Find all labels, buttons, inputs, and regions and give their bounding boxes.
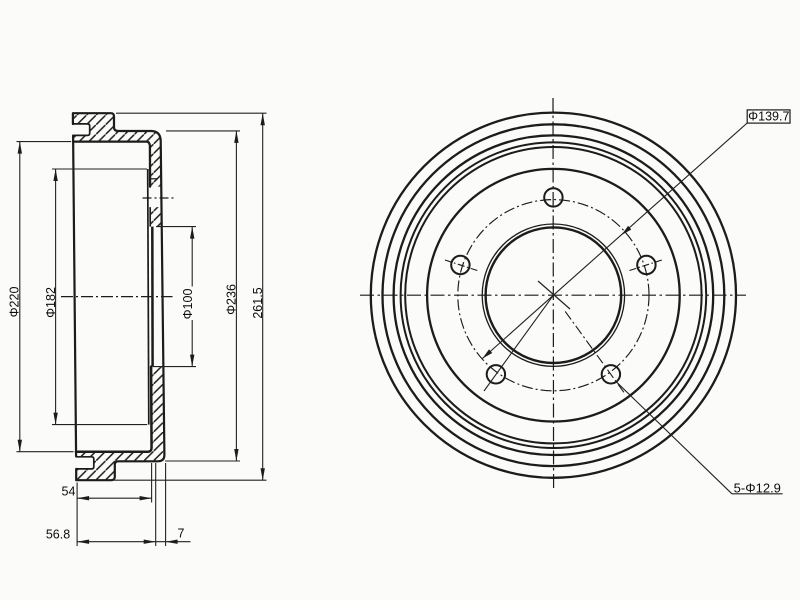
svg-text:Φ236: Φ236 [224,284,238,315]
svg-text:Φ220: Φ220 [8,287,22,318]
svg-text:7: 7 [178,527,185,541]
svg-text:Φ100: Φ100 [181,289,195,320]
svg-text:261.5: 261.5 [251,287,265,318]
svg-text:54: 54 [62,485,76,499]
svg-text:Φ139.7: Φ139.7 [748,110,789,124]
svg-text:Φ182: Φ182 [44,287,58,318]
svg-text:5-Φ12.9: 5-Φ12.9 [734,480,781,495]
svg-text:56.8: 56.8 [46,528,70,542]
